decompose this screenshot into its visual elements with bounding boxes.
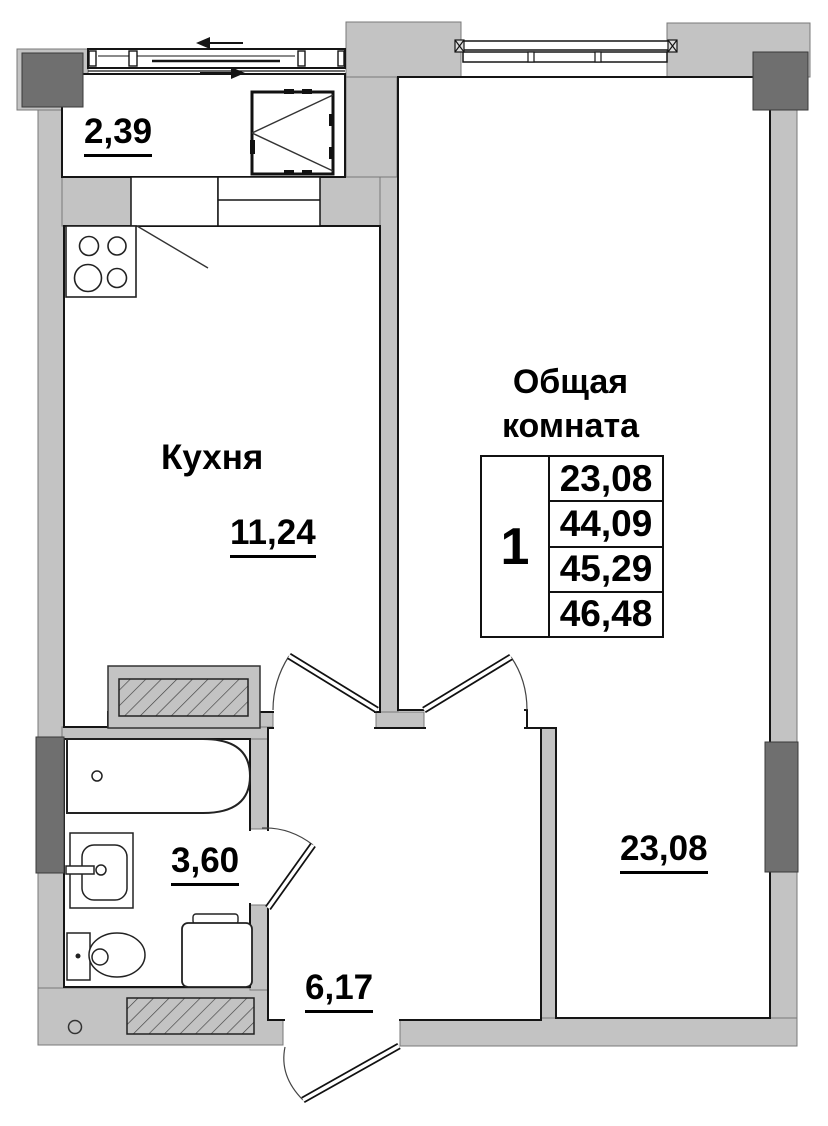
living-door-opening: [426, 708, 524, 731]
balcony-kitchen-partition: [131, 177, 320, 226]
stove: [66, 226, 136, 297]
kitchen-door-opening: [274, 708, 374, 731]
wall-center-foot: [376, 712, 424, 728]
column-left-mid: [36, 737, 64, 873]
wall-top-center-leg: [346, 77, 397, 177]
wall-bath-right-upper: [250, 727, 268, 829]
bathtub: [67, 739, 250, 813]
drain: [92, 771, 102, 781]
wall-bottom-right: [400, 1018, 797, 1046]
apartment-floor-plan: 2,39 Кухня 11,24 Общая комната 23,08 3,6…: [0, 0, 828, 1126]
balcony-door-box: [131, 177, 218, 226]
entrance-opening: [285, 1018, 399, 1023]
total-area-with-balcony-value: 46,48: [550, 591, 662, 636]
column-top-right: [753, 52, 808, 110]
wall-right: [770, 77, 797, 1018]
balcony-area-label: 2,39: [84, 114, 152, 149]
toilet: [67, 933, 145, 980]
hall-area-label: 6,17: [305, 970, 373, 1005]
toilet-bowl: [89, 933, 145, 977]
wall-left: [38, 107, 64, 1045]
living-area-value: 23,08: [550, 457, 662, 500]
kitchen-area-label: 11,24: [230, 515, 316, 550]
column-right-mid: [765, 742, 798, 872]
wall-bath-top: [62, 727, 272, 739]
washing-machine: [182, 914, 252, 987]
room-count-cell: 1: [482, 457, 550, 636]
usable-area-value: 44,09: [550, 500, 662, 545]
living-room-name-label: Общая комната: [468, 360, 673, 448]
area-summary-table: 1 23,08 44,09 45,29 46,48: [480, 455, 664, 638]
entrance-door: [284, 1046, 399, 1100]
wall-top-center-block: [346, 22, 461, 77]
total-area-value: 45,29: [550, 546, 662, 591]
vent-shaft-bottom: [127, 998, 254, 1034]
bathroom-area-label: 3,60: [171, 843, 239, 878]
wall-center: [380, 177, 398, 712]
living-room-window: [455, 40, 677, 62]
kitchen-name-label: Кухня: [161, 440, 263, 475]
casement-window-symbol: [250, 89, 334, 175]
riser-pipe: [69, 1021, 82, 1034]
sink: [66, 833, 133, 908]
column-top-left: [22, 53, 83, 107]
balcony-window-box: [218, 177, 320, 226]
faucet: [66, 866, 94, 874]
area-values: 23,08 44,09 45,29 46,48: [550, 457, 662, 636]
living-room-area-label: 23,08: [620, 831, 708, 866]
floor-plan-drawing: [0, 0, 828, 1126]
balcony-window: [88, 37, 345, 79]
wall-balcony-partition-left: [62, 177, 131, 226]
bath-door-opening: [248, 831, 270, 903]
